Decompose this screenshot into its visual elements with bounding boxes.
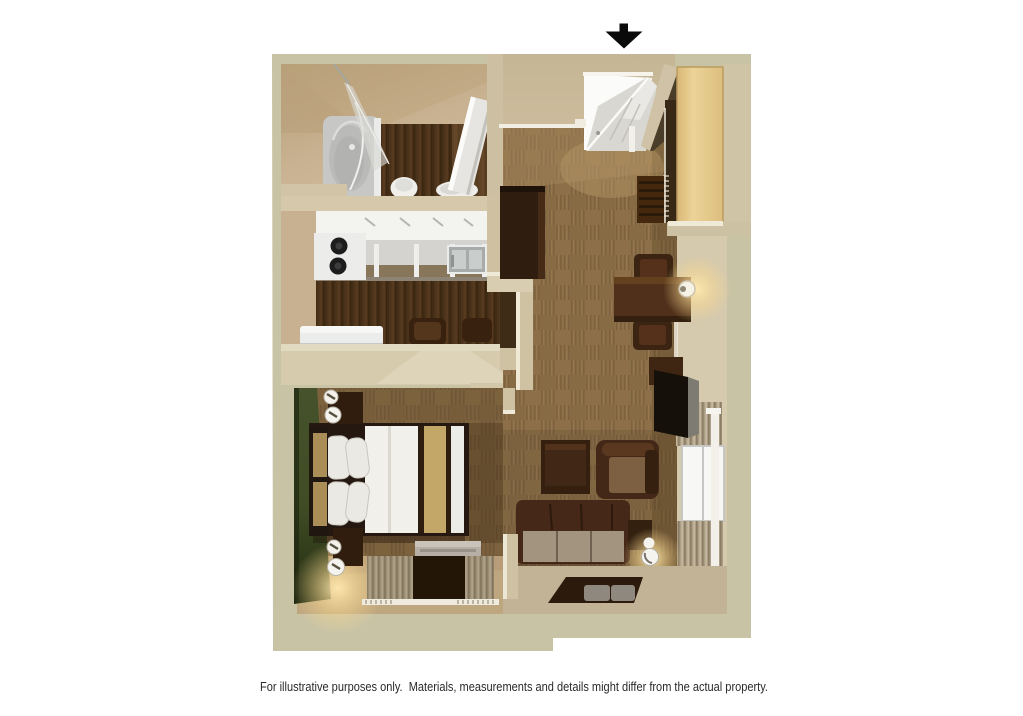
svg-text:For illustrative purposes only: For illustrative purposes only. Material… — [260, 679, 768, 694]
